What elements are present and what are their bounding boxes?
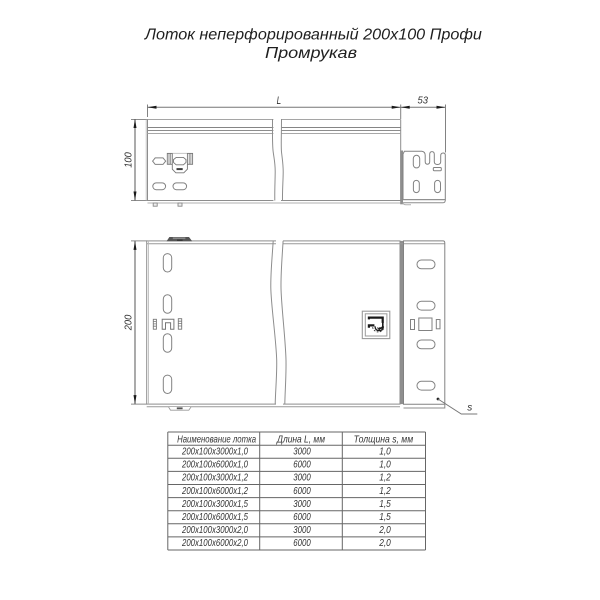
svg-text:200х100х3000х1,2: 200х100х3000х1,2 (181, 473, 248, 484)
svg-text:200: 200 (123, 315, 135, 332)
svg-text:3000: 3000 (293, 447, 311, 458)
svg-text:53: 53 (418, 95, 429, 106)
svg-text:L: L (277, 95, 282, 107)
svg-text:1,2: 1,2 (379, 473, 391, 484)
svg-text:Толщина s, мм: Толщина s, мм (354, 434, 414, 445)
svg-text:200х100х3000х2,0: 200х100х3000х2,0 (181, 525, 248, 536)
svg-text:6000: 6000 (293, 486, 311, 497)
svg-text:3000: 3000 (293, 473, 311, 484)
svg-text:1,0: 1,0 (379, 460, 391, 471)
svg-text:1,2: 1,2 (379, 486, 391, 497)
svg-text:3000: 3000 (293, 525, 311, 536)
svg-text:6000: 6000 (293, 460, 311, 471)
svg-text:200х100х6000х1,0: 200х100х6000х1,0 (181, 460, 248, 471)
svg-text:200х100х6000х1,2: 200х100х6000х1,2 (181, 486, 248, 497)
svg-text:200х100х6000х1,5: 200х100х6000х1,5 (181, 512, 248, 523)
svg-text:6000: 6000 (293, 538, 311, 549)
svg-text:Лоток неперфорированный 200х10: Лоток неперфорированный 200х100 Профи (144, 27, 482, 44)
svg-text:1,0: 1,0 (379, 447, 391, 458)
svg-text:2,0: 2,0 (378, 538, 391, 549)
svg-text:1,5: 1,5 (379, 512, 391, 523)
svg-text:Промрукав: Промрукав (265, 45, 357, 62)
svg-text:Наименование лотка: Наименование лотка (177, 434, 256, 445)
svg-text:200х100х3000х1,0: 200х100х3000х1,0 (181, 447, 248, 458)
svg-text:200х100х3000х1,5: 200х100х3000х1,5 (181, 499, 248, 510)
svg-text:3000: 3000 (293, 499, 311, 510)
svg-text:2,0: 2,0 (378, 525, 391, 536)
svg-text:6000: 6000 (293, 512, 311, 523)
svg-text:200х100х6000х2,0: 200х100х6000х2,0 (181, 538, 248, 549)
svg-text:100: 100 (123, 152, 135, 168)
svg-text:Длина L, мм: Длина L, мм (276, 434, 325, 445)
svg-text:1,5: 1,5 (379, 499, 391, 510)
svg-text:s: s (467, 402, 473, 414)
